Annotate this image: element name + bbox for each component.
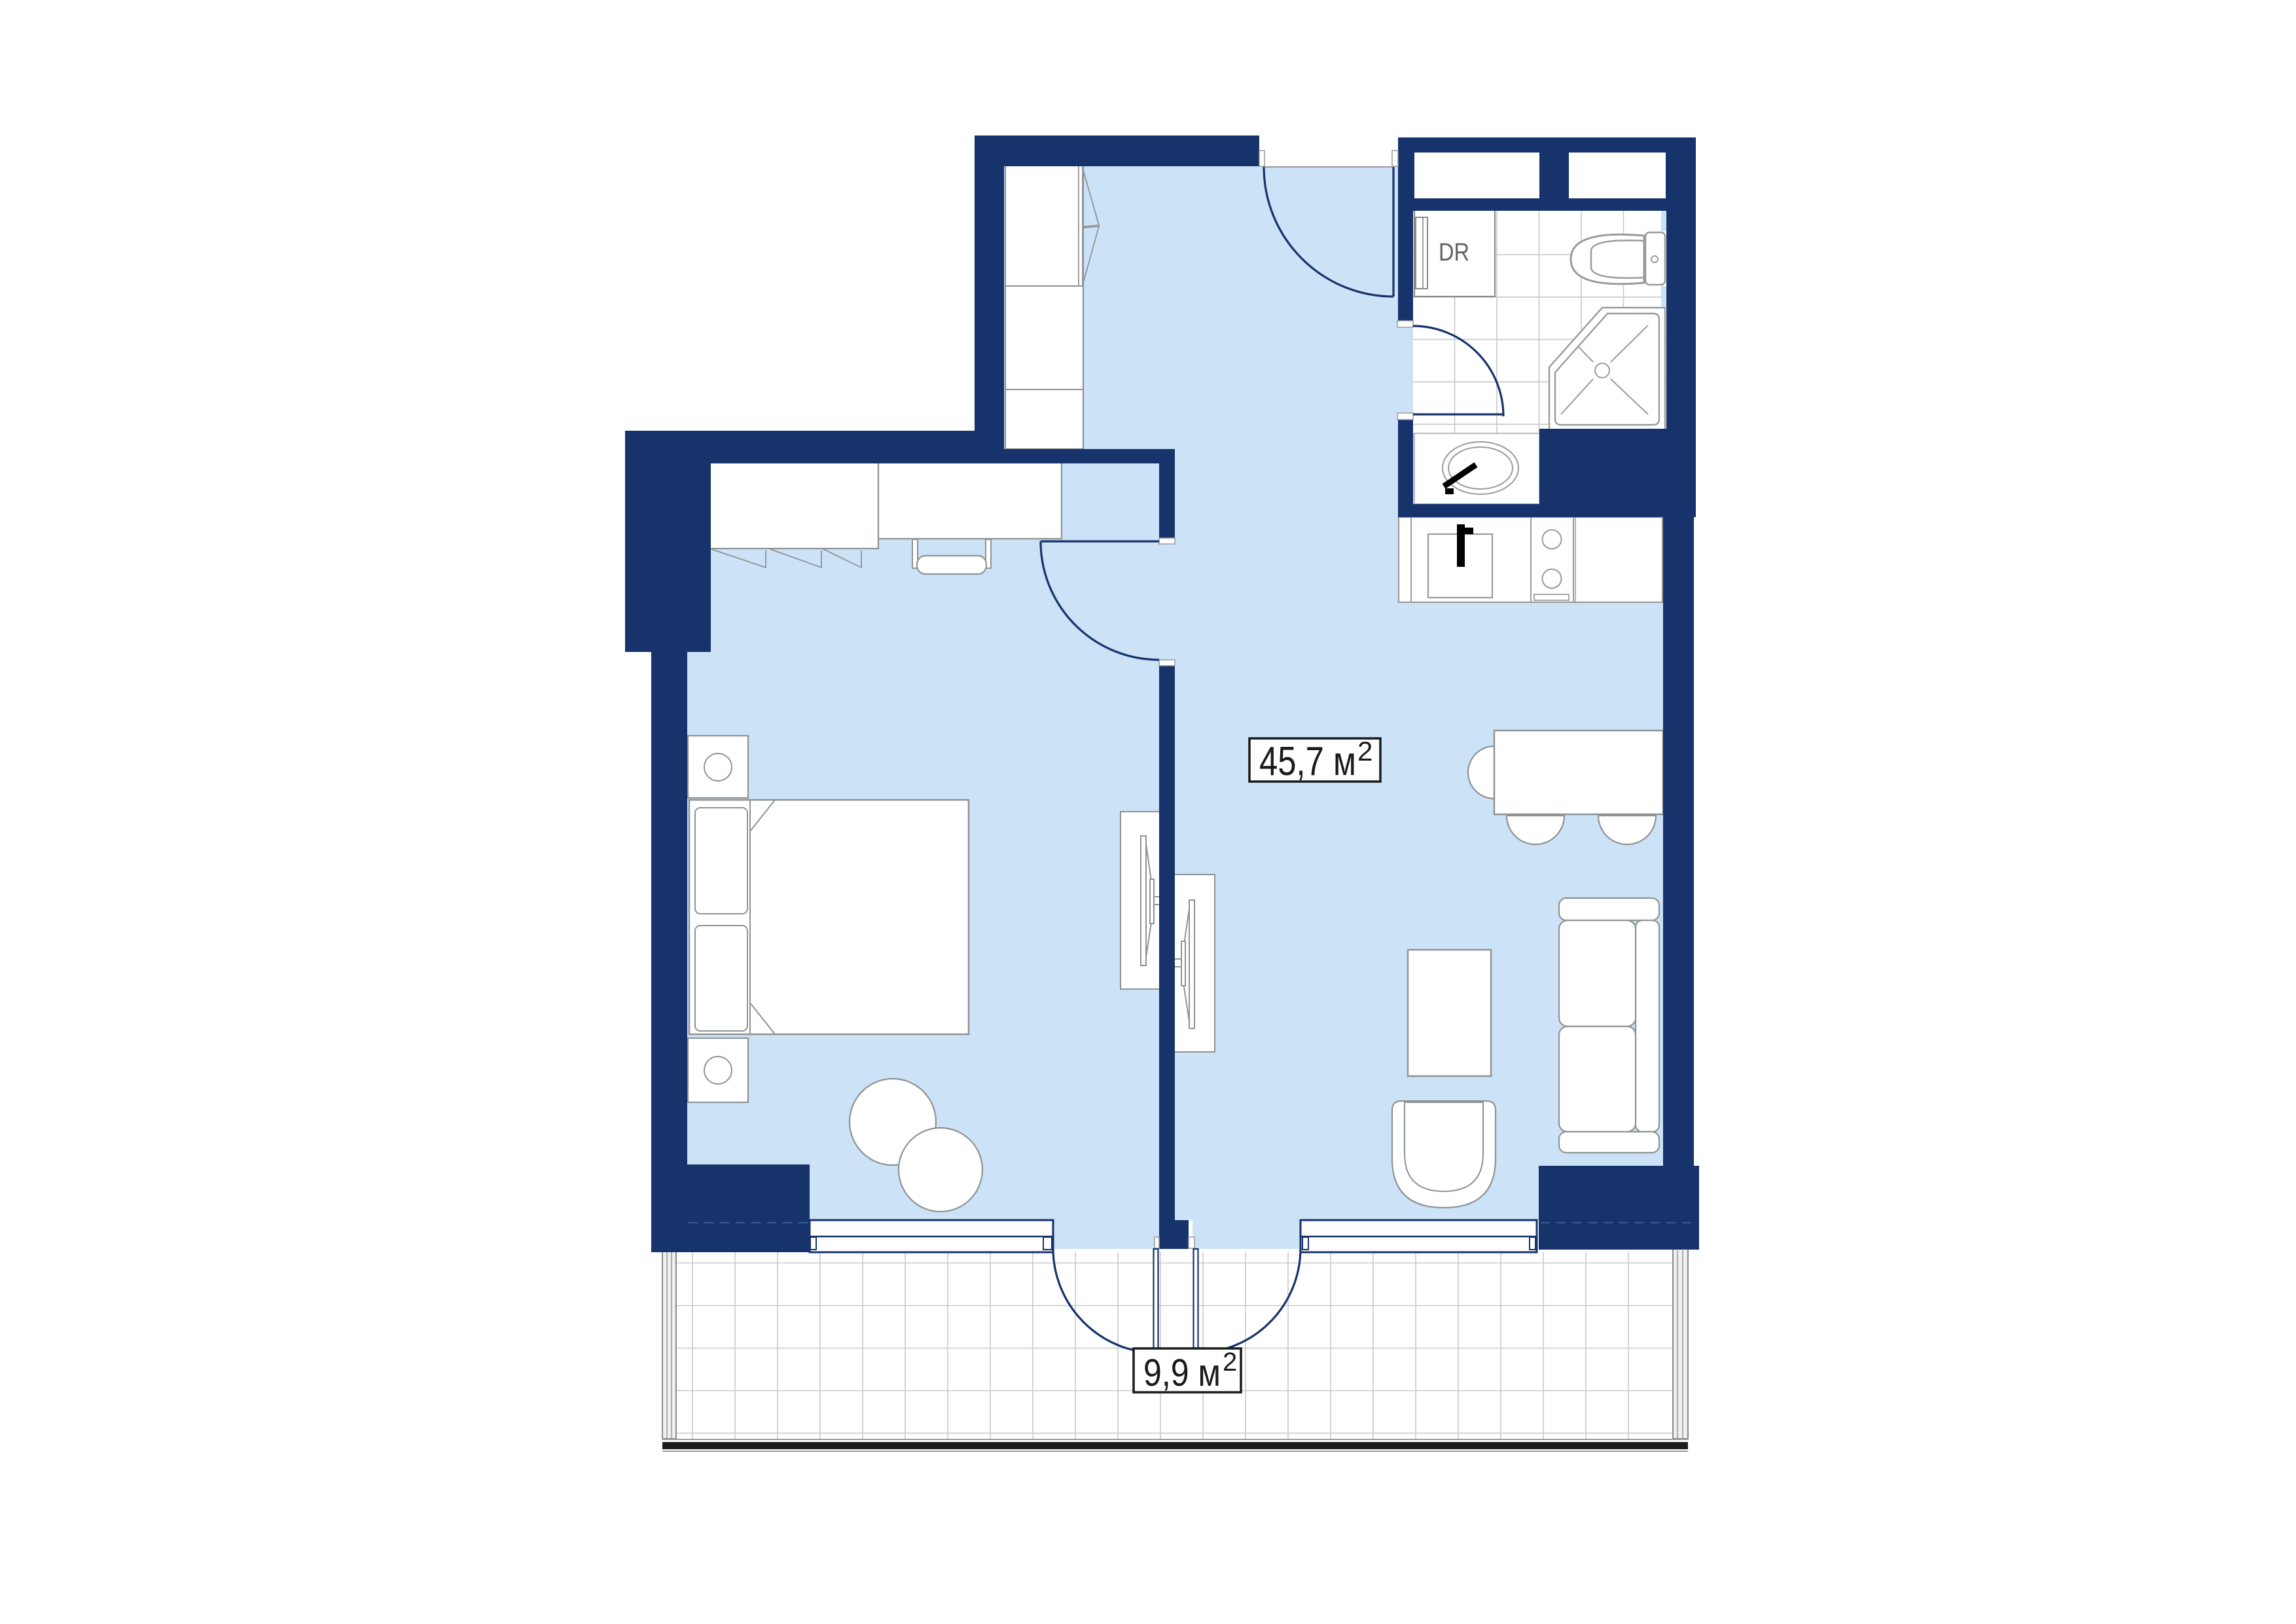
- svg-text:2: 2: [1223, 1348, 1237, 1377]
- svg-text:2: 2: [1357, 736, 1372, 767]
- svg-text:DR: DR: [1439, 239, 1469, 266]
- svg-text:9,9 м: 9,9 м: [1143, 1352, 1221, 1394]
- svg-text:45,7 м: 45,7 м: [1259, 739, 1356, 784]
